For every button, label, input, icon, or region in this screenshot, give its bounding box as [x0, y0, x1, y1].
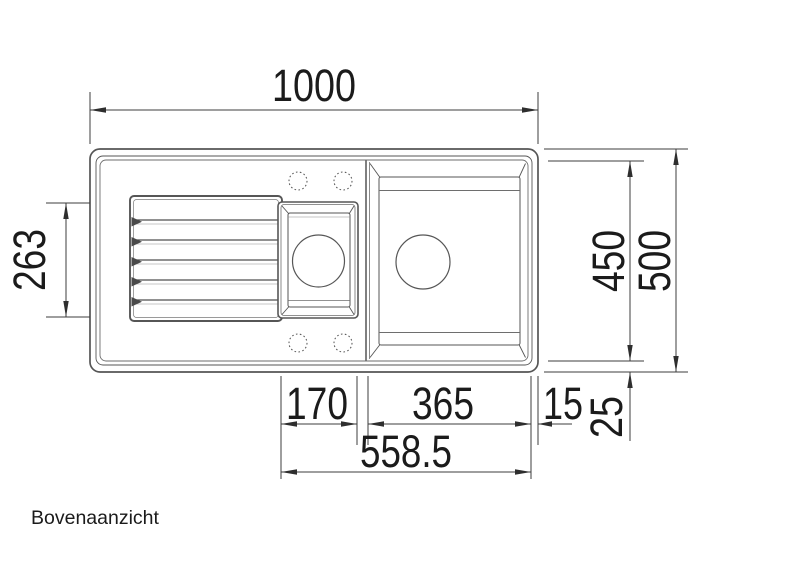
bowl-corner-bevel	[370, 345, 380, 358]
arrowhead-down	[627, 345, 632, 361]
tap-hole-marker	[289, 172, 307, 190]
dim-text-rim-offset: 25	[581, 396, 632, 438]
small-bowl	[278, 202, 358, 318]
dim-text-total-depth: 500	[629, 230, 680, 292]
rib-end-wedge	[132, 257, 143, 267]
rib-end-wedge	[132, 277, 143, 287]
main-bowl	[370, 164, 526, 358]
dimension-cutout-width: 558.5	[281, 426, 531, 477]
arrowhead-left	[90, 107, 106, 112]
dimension-drainboard-section: 263	[4, 203, 90, 317]
dim-text-main-bowl-width: 365	[412, 378, 474, 429]
sink-body	[90, 149, 538, 372]
bowl-corner-bevel	[519, 345, 526, 358]
dimension-edge-offset: 15	[538, 378, 583, 429]
arrowhead-right	[522, 107, 538, 112]
dimension-rim-offset: 25	[581, 372, 633, 441]
arrowhead-up	[627, 372, 632, 388]
tap-hole-marker	[289, 334, 307, 352]
arrowhead-down	[63, 301, 68, 317]
dim-text-cutout-width: 558.5	[360, 426, 452, 477]
dim-text-small-bowl-width: 170	[286, 378, 348, 429]
drainboard-outline	[130, 196, 282, 321]
drainboard-rib	[132, 237, 280, 247]
dim-text-total-width: 1000	[272, 60, 356, 111]
arrowhead-down	[673, 356, 678, 372]
arrowhead-up	[63, 203, 68, 219]
drainboard	[130, 196, 282, 321]
rib-end-wedge	[132, 217, 143, 227]
drainboard-rib	[132, 217, 280, 227]
dim-text-edge-offset: 15	[543, 378, 583, 429]
bowl-corner-bevel	[519, 164, 526, 178]
arrowhead-left	[281, 469, 297, 474]
bowl-corner-bevel	[370, 164, 380, 178]
arrowhead-right	[515, 469, 531, 474]
main-bowl-drain-icon	[396, 235, 450, 289]
view-label: Bovenaanzicht	[31, 507, 160, 529]
dim-text-drainboard-section: 263	[4, 229, 55, 291]
drainboard-rib	[132, 297, 280, 307]
tap-hole-marker	[334, 334, 352, 352]
technical-drawing-page: 1000 263 450 500	[0, 0, 800, 573]
drainboard-rib	[132, 257, 280, 267]
rib-end-wedge	[132, 297, 143, 307]
rib-end-wedge	[132, 237, 143, 247]
tap-hole-marker	[334, 172, 352, 190]
drainboard-rib	[132, 277, 280, 287]
arrowhead-right	[515, 421, 531, 426]
dimension-main-bowl-width: 365	[368, 378, 531, 429]
dimension-total-width: 1000	[90, 60, 538, 144]
arrowhead-up	[627, 161, 632, 177]
sink-top-view-drawing: 1000 263 450 500	[0, 0, 800, 573]
dim-text-bowl-depth: 450	[583, 230, 634, 292]
dimension-small-bowl-width: 170	[281, 378, 357, 429]
arrowhead-up	[673, 149, 678, 165]
